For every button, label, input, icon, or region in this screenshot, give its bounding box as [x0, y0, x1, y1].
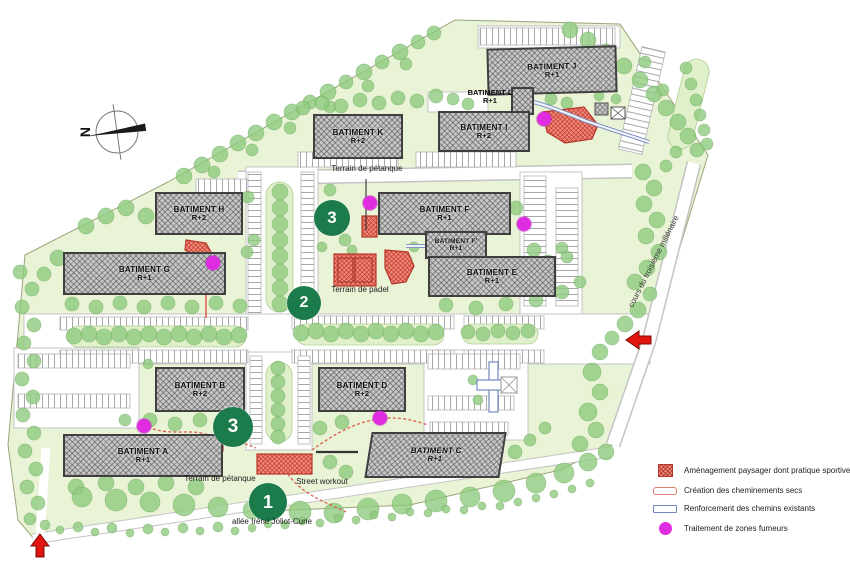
- site-plan: BATIMENT JR+1 BATIMENT L R+1 BATIMENT IR…: [0, 0, 850, 571]
- label-terrain-petanque-sud: Terrain de pétanque: [175, 475, 265, 484]
- building-i: BATIMENT IR+2: [438, 111, 530, 152]
- smoking-zone-dot: [137, 419, 151, 433]
- legend-item-amenagement: Aménagement paysager dont pratique sport…: [652, 464, 850, 477]
- building-c: BATIMENT CR+1: [364, 432, 506, 478]
- marker-2-padel: 2: [287, 286, 321, 320]
- magenta-dot-swatch-icon: [659, 522, 672, 535]
- legend: Aménagement paysager dont pratique sport…: [652, 464, 850, 535]
- building-f-prime: BATIMENT F'R+1: [425, 231, 487, 259]
- building-l-label: BATIMENT L R+1: [458, 89, 522, 106]
- building-d: BATIMENT DR+2: [318, 367, 406, 412]
- smoking-zone-dot: [206, 256, 220, 270]
- building-f: BATIMENT FR+1: [378, 192, 511, 235]
- building-h: BATIMENT HR+2: [155, 192, 243, 235]
- red-hatch-swatch-icon: [658, 464, 673, 477]
- smoking-zone-dot: [373, 411, 387, 425]
- north-compass-icon: [85, 100, 149, 163]
- street-workout-area: [257, 454, 312, 474]
- label-terrain-padel: Terrain de padel: [324, 286, 396, 295]
- smoking-zone-dot: [517, 217, 531, 231]
- building-g: BATIMENT GR+1: [63, 252, 226, 295]
- legend-item-chemins-existants: Renforcement des chemins existants: [652, 504, 850, 513]
- north-letter: N: [77, 127, 93, 137]
- marker-1-street-workout: 1: [249, 483, 287, 521]
- smoking-zone-dot: [537, 112, 551, 126]
- label-terrain-petanque-nord: Terrain de pétanque: [320, 165, 414, 174]
- marker-3-south: 3: [213, 407, 253, 447]
- label-allee-irene-joliot-curie: allée Irène Joliot-Curie: [212, 518, 332, 527]
- legend-item-zones-fumeurs: Traitement de zones fumeurs: [652, 522, 850, 535]
- smoking-zone-dot: [363, 196, 377, 210]
- marker-3-north: 3: [314, 200, 350, 236]
- building-a: BATIMENT AR+1: [63, 434, 223, 477]
- legend-item-cheminements: Création des cheminements secs: [652, 486, 850, 495]
- building-k: BATIMENT KR+2: [313, 114, 403, 159]
- blue-path-swatch-icon: [653, 505, 677, 513]
- pink-path-swatch-icon: [653, 487, 677, 495]
- label-street-workout: Street workout: [288, 478, 356, 487]
- building-e: BATIMENT ER+1: [428, 256, 556, 297]
- terrain-petanque-nord-area: [362, 216, 377, 237]
- building-b: BATIMENT BR+2: [155, 367, 245, 412]
